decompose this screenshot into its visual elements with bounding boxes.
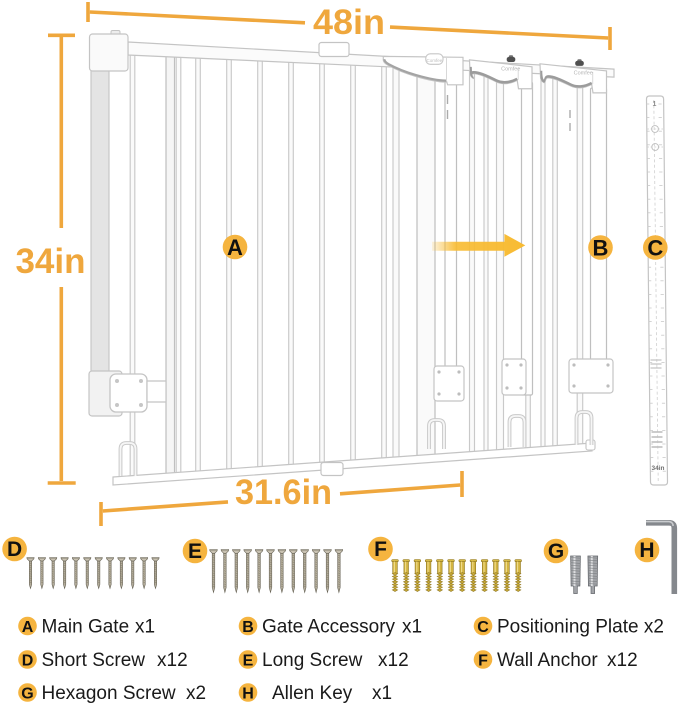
svg-text:Comfee: Comfee: [501, 66, 520, 72]
svg-text:Short Screw: Short Screw: [42, 650, 146, 671]
svg-text:E: E: [243, 652, 254, 669]
svg-text:Allen Key: Allen Key: [272, 683, 353, 704]
svg-text:Gate Accessory: Gate Accessory: [262, 617, 396, 638]
svg-text:31.6in: 31.6in: [235, 473, 332, 512]
svg-text:B: B: [593, 235, 609, 260]
svg-text:34in: 34in: [651, 465, 664, 472]
svg-text:F: F: [478, 652, 488, 669]
svg-text:C: C: [647, 235, 663, 260]
svg-text:x1: x1: [372, 683, 392, 704]
svg-text:A: A: [227, 235, 243, 260]
svg-text:Main Gate: Main Gate: [42, 617, 130, 638]
svg-text:Comfee: Comfee: [574, 70, 593, 76]
svg-text:48in: 48in: [313, 3, 385, 42]
svg-text:Wall Anchor: Wall Anchor: [497, 650, 598, 671]
svg-text:B: B: [242, 619, 254, 636]
svg-text:F: F: [374, 538, 387, 561]
svg-text:x2: x2: [186, 683, 206, 704]
svg-text:x12: x12: [378, 650, 409, 671]
svg-text:D: D: [22, 652, 34, 669]
svg-text:Long Screw: Long Screw: [262, 650, 363, 671]
svg-text:1: 1: [653, 101, 657, 108]
svg-text:H: H: [242, 685, 254, 702]
svg-text:H: H: [639, 539, 654, 562]
svg-text:34in: 34in: [15, 242, 85, 281]
svg-text:x12: x12: [607, 650, 638, 671]
svg-text:E: E: [188, 540, 202, 563]
svg-text:A: A: [22, 619, 34, 636]
svg-text:C: C: [477, 619, 489, 636]
svg-text:x12: x12: [157, 650, 188, 671]
svg-text:Positioning Plate x2: Positioning Plate x2: [497, 617, 664, 638]
svg-text:D: D: [7, 538, 22, 561]
svg-text:Comfee: Comfee: [427, 58, 443, 63]
svg-text:x1: x1: [135, 617, 155, 638]
svg-text:Hexagon Screw: Hexagon Screw: [42, 683, 176, 704]
svg-text:G: G: [548, 540, 564, 563]
svg-text:G: G: [21, 685, 33, 702]
svg-text:x1: x1: [402, 617, 422, 638]
